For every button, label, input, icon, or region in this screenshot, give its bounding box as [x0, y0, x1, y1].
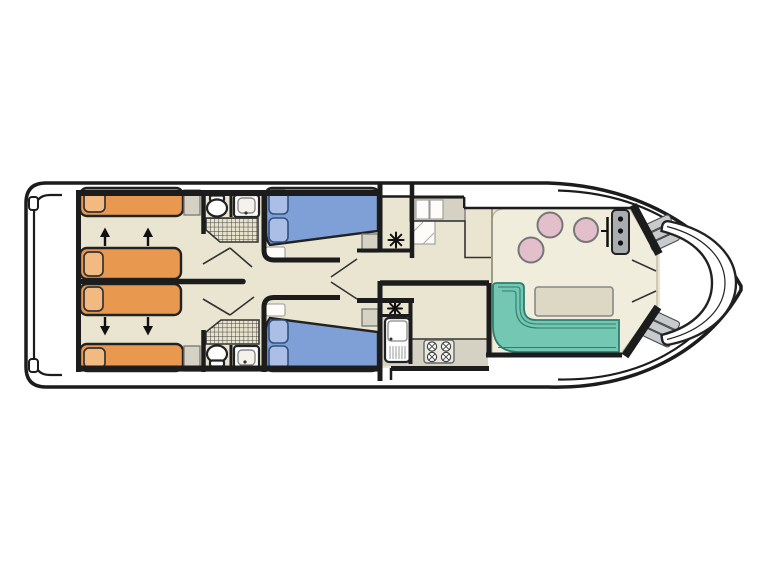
pillow [269, 218, 288, 242]
cabinet-door [430, 200, 443, 219]
instrument-dot [618, 216, 623, 221]
pillow [84, 252, 103, 276]
heater-icon-top [389, 233, 404, 248]
instrument-dot [618, 240, 623, 245]
pillow [84, 287, 103, 311]
faucet-dot [390, 338, 393, 341]
sink-basin [238, 198, 255, 213]
dinette-table [535, 287, 613, 316]
cabinet-front [412, 221, 435, 244]
stern-cleat-top [29, 197, 38, 210]
pillow [84, 348, 105, 368]
stern-cleat-bottom [29, 359, 38, 372]
nightstand [362, 309, 378, 326]
boat-floorplan-page [0, 0, 768, 576]
faucet-dot [243, 360, 246, 363]
stool [574, 218, 598, 242]
boat-floorplan-diagram [0, 0, 768, 576]
faucet-dot [244, 211, 247, 214]
heater-icon-bottom [388, 302, 402, 316]
sink-basin [238, 350, 255, 365]
stool [519, 238, 544, 263]
toilet-icon [207, 200, 227, 217]
cabinet-door [416, 200, 429, 219]
pillow [269, 320, 288, 343]
stool [538, 213, 563, 238]
bed-step [266, 304, 285, 316]
instrument-dot [618, 228, 623, 233]
